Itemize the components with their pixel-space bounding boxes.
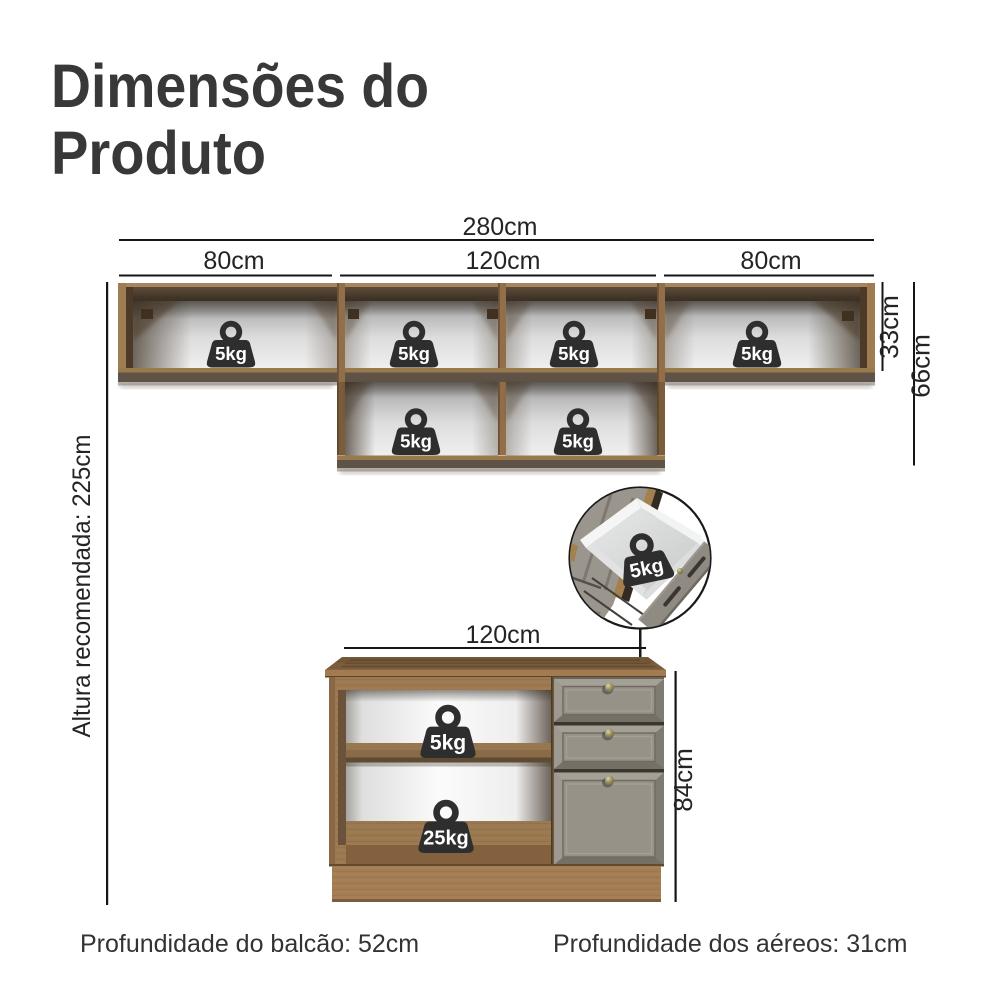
svg-text:5kg: 5kg (562, 431, 594, 452)
svg-text:5kg: 5kg (400, 431, 432, 452)
svg-text:5kg: 5kg (430, 731, 466, 754)
svg-text:84cm: 84cm (668, 748, 698, 812)
svg-text:80cm: 80cm (203, 247, 264, 275)
svg-text:5kg: 5kg (558, 343, 590, 364)
svg-text:Altura recomendada: 225cm: Altura recomendada: 225cm (68, 435, 96, 738)
svg-text:120cm: 120cm (465, 621, 540, 649)
svg-text:Profundidade do balcão: 52cm: Profundidade do balcão: 52cm (80, 930, 419, 958)
svg-text:5kg: 5kg (741, 343, 773, 364)
svg-text:66cm: 66cm (906, 334, 936, 398)
svg-text:Dimensões do: Dimensões do (51, 52, 429, 120)
svg-text:280cm: 280cm (462, 213, 537, 241)
svg-text:Produto: Produto (51, 119, 266, 187)
svg-text:80cm: 80cm (740, 247, 801, 275)
svg-text:Profundidade dos aéreos: 31cm: Profundidade dos aéreos: 31cm (553, 930, 907, 958)
svg-text:25kg: 25kg (423, 827, 468, 849)
svg-text:120cm: 120cm (465, 247, 540, 275)
svg-text:5kg: 5kg (215, 343, 247, 364)
svg-text:5kg: 5kg (398, 343, 430, 364)
svg-text:33cm: 33cm (874, 295, 904, 359)
